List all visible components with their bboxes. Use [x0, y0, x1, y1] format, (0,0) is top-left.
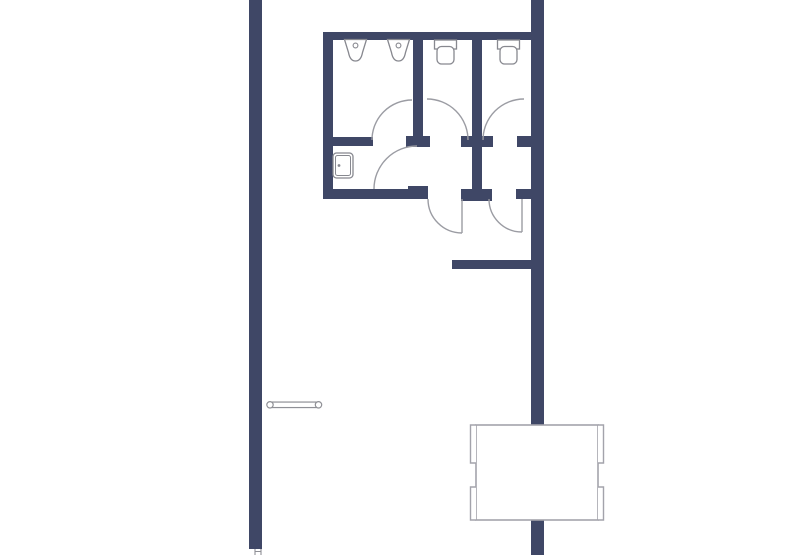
center-partition-bottom-cap — [461, 189, 492, 201]
center-partition-mid-cap — [461, 136, 493, 147]
table-leg-tab-2 — [471, 487, 477, 520]
sink-faucet — [338, 164, 341, 167]
toilet-2-icon — [498, 40, 520, 64]
floor-plan — [0, 0, 794, 555]
right-wall-mid-cap — [517, 136, 531, 147]
urinal-1-drain — [353, 43, 358, 48]
bottom-wall-hinge-cap-left — [408, 186, 428, 199]
table-leg-tab-4 — [598, 487, 604, 520]
floor-plan-svg — [0, 0, 794, 555]
wall-bench-end-left — [267, 402, 273, 408]
left-corridor-wall — [249, 0, 262, 549]
stall-partition-left — [413, 32, 423, 138]
table — [476, 425, 598, 520]
table-leg-tab-1 — [471, 425, 477, 463]
table-leg-tab-3 — [598, 425, 604, 463]
toilet-1-icon — [435, 40, 457, 64]
toilet-1-bowl — [437, 47, 454, 65]
restroom-left-wall — [323, 32, 333, 199]
toilet-2-bowl — [500, 47, 517, 65]
center-partition-wall — [472, 32, 482, 199]
right-wall-bottom-cap — [516, 189, 531, 199]
urinal-2-drain — [396, 43, 401, 48]
urinal-partition-wall — [323, 137, 373, 146]
hallway-wall — [452, 260, 544, 269]
sink-icon — [333, 153, 353, 178]
stall-partition-left-hinge-cap — [406, 136, 430, 147]
restroom-top-wall — [323, 32, 544, 40]
wall-bench-end-right — [315, 402, 321, 408]
wall-bench-bar — [273, 402, 317, 408]
plan-background — [0, 0, 794, 555]
